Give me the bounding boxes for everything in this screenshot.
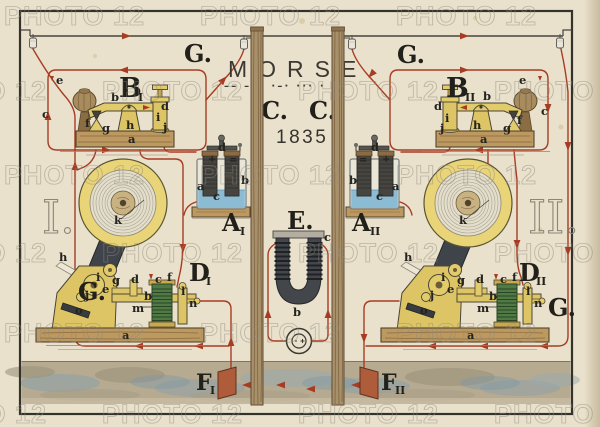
line-label-g-bottom-left: G. — [78, 277, 106, 306]
earth-plate-left — [218, 367, 236, 399]
line-label-g-bottom-right: G. — [548, 293, 576, 322]
svg-text:d: d — [218, 140, 226, 154]
svg-text:i: i — [156, 110, 161, 124]
svg-text:h: h — [473, 118, 482, 132]
svg-text:c: c — [541, 104, 548, 118]
svg-text:PHOTO 12: PHOTO 12 — [298, 238, 439, 268]
key-label-right-sub: II — [465, 91, 475, 104]
svg-text:j: j — [162, 120, 167, 134]
earth-label-left-sub: I — [210, 384, 215, 397]
svg-text:PHOTO 12: PHOTO 12 — [0, 238, 47, 268]
svg-text:c: c — [213, 189, 220, 203]
svg-text:g: g — [503, 121, 511, 135]
svg-text:PHOTO 12: PHOTO 12 — [494, 238, 600, 268]
svg-text:b: b — [483, 89, 491, 103]
svg-text:PHOTO 12: PHOTO 12 — [0, 399, 47, 427]
svg-text:j: j — [439, 121, 444, 135]
line-label-g-top-right: G. — [397, 40, 425, 69]
plate-year: 1835 — [276, 127, 328, 148]
svg-text:PHOTO 12: PHOTO 12 — [4, 160, 145, 190]
earth-plate-right — [360, 367, 378, 399]
magnet-bottom-label: b — [293, 305, 301, 319]
svg-text:+: + — [382, 154, 390, 165]
svg-text:PHOTO 12: PHOTO 12 — [298, 399, 439, 427]
svg-text:PHOTO 12: PHOTO 12 — [396, 1, 537, 31]
svg-text:PHOTO 12: PHOTO 12 — [4, 1, 145, 31]
station-mark-c-left: C. — [261, 96, 288, 125]
telegraph-pole-left — [251, 27, 264, 405]
svg-text:PHOTO 12: PHOTO 12 — [200, 1, 341, 31]
earth-ground-band — [5, 361, 580, 404]
svg-text:c: c — [42, 107, 49, 121]
page-edge-shadow — [584, 0, 600, 427]
svg-text:PHOTO 12: PHOTO 12 — [4, 318, 145, 348]
svg-text:PHOTO 12: PHOTO 12 — [494, 399, 600, 427]
battery-label-left: A — [221, 208, 241, 237]
vintage-morse-telegraph-plate: k h i e j o g d b m c f l n a — [0, 0, 600, 427]
earth-label-right-sub: II — [395, 384, 405, 397]
svg-text:i: i — [445, 111, 450, 125]
electromagnet-label: E. — [287, 206, 314, 235]
svg-text:PHOTO 12: PHOTO 12 — [102, 238, 243, 268]
svg-text:a: a — [128, 132, 136, 146]
svg-text:d: d — [371, 140, 379, 154]
svg-text:g: g — [102, 121, 110, 135]
register-label-left-sub: I — [206, 275, 211, 288]
svg-text:PHOTO 12: PHOTO 12 — [396, 318, 537, 348]
illustration: k h i e j o g d b m c f l n a — [0, 0, 600, 427]
line-label-g-top-left: G. — [184, 39, 212, 68]
svg-text:b: b — [349, 173, 357, 187]
svg-text:e: e — [56, 73, 63, 87]
battery-label-right: A — [351, 208, 371, 237]
svg-text:PHOTO 12: PHOTO 12 — [102, 399, 243, 427]
svg-text:PHOTO 12: PHOTO 12 — [494, 76, 600, 106]
battery-label-left-sub: I — [240, 225, 245, 238]
svg-text:PHOTO 12: PHOTO 12 — [200, 160, 341, 190]
station-numeral-right: II. — [528, 190, 579, 244]
svg-text:h: h — [126, 118, 135, 132]
svg-text:PHOTO 12: PHOTO 12 — [0, 76, 47, 106]
svg-text:=: = — [359, 155, 367, 166]
register-label-right-sub: II — [536, 275, 546, 288]
svg-text:PHOTO 12: PHOTO 12 — [396, 160, 537, 190]
svg-text:a: a — [480, 132, 488, 146]
svg-text:PHOTO 12: PHOTO 12 — [102, 76, 243, 106]
svg-text:PHOTO 12: PHOTO 12 — [298, 76, 439, 106]
station-numeral-left: I. — [42, 190, 75, 244]
svg-text:PHOTO 12: PHOTO 12 — [200, 318, 341, 348]
svg-text:c: c — [376, 189, 383, 203]
battery-label-right-sub: II — [370, 225, 380, 238]
